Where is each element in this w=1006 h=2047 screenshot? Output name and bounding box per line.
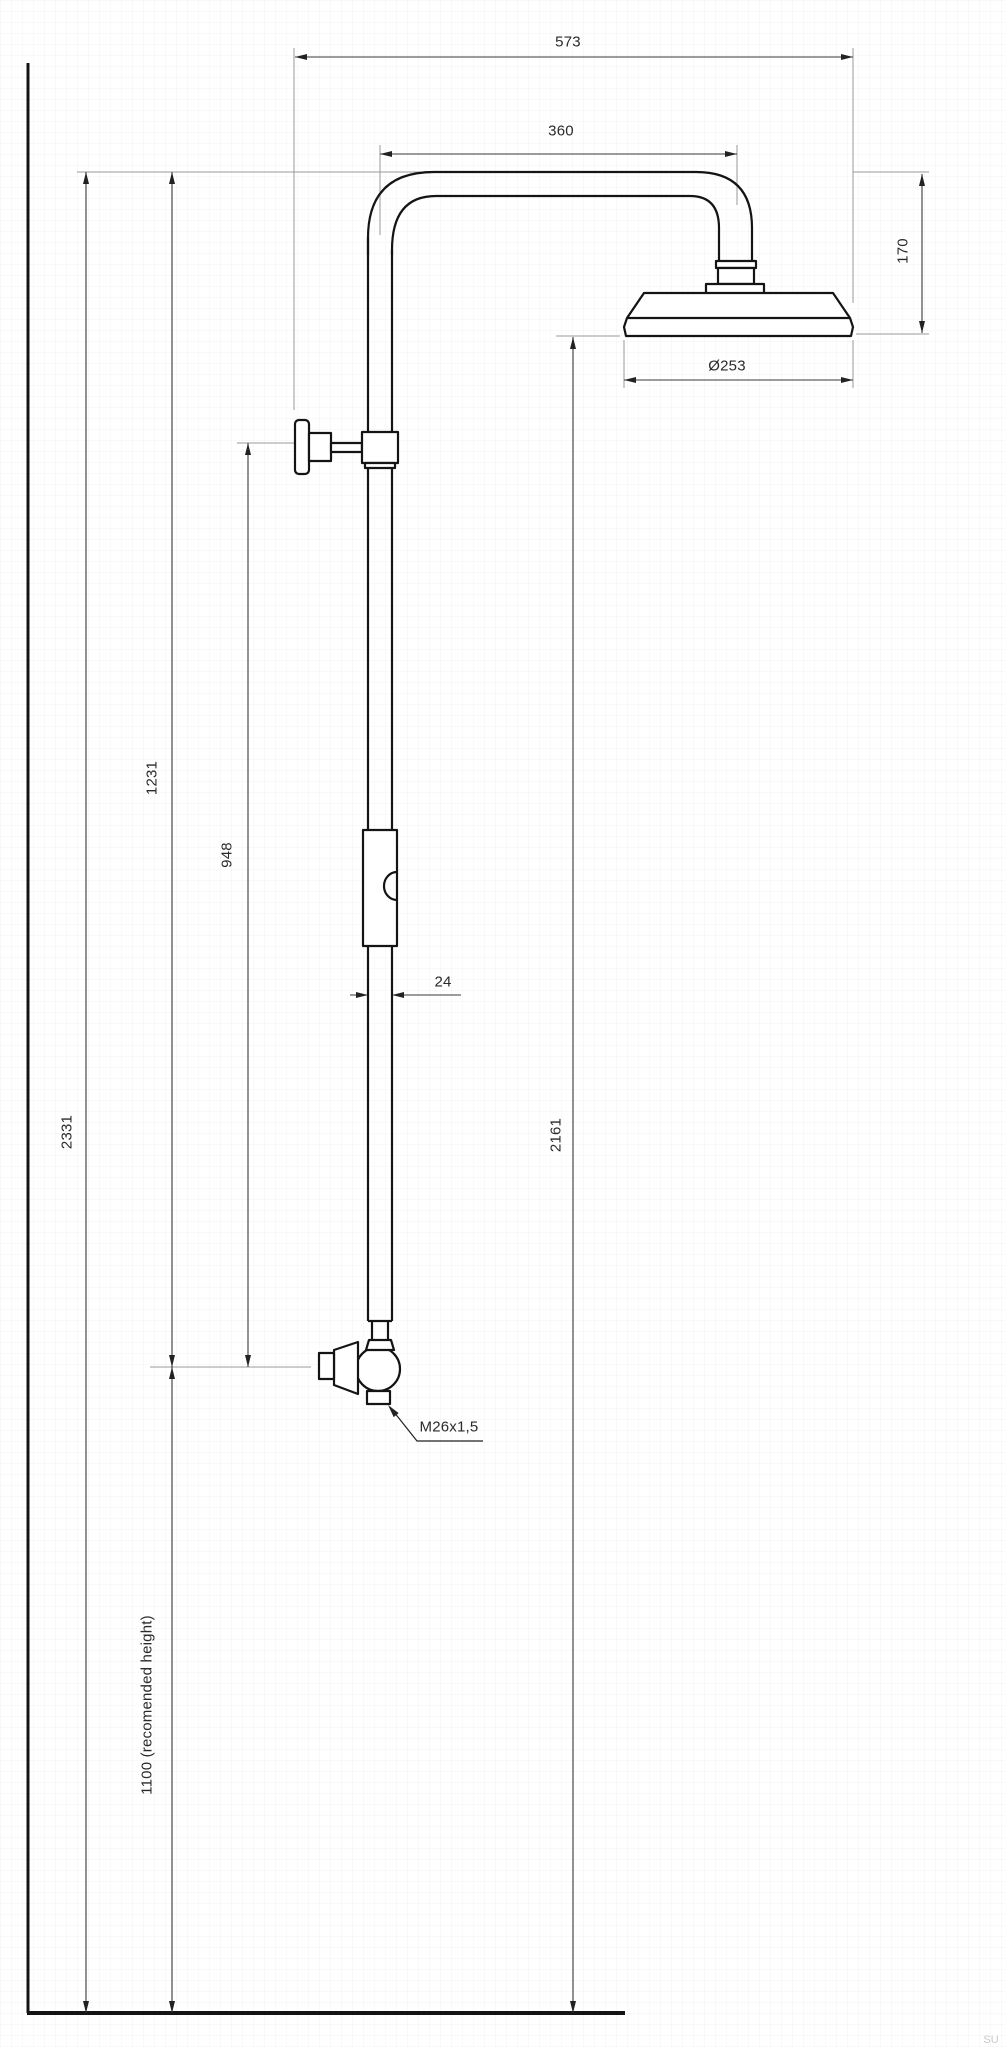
watermark: SU xyxy=(983,2034,998,2046)
dim-label-pipe-diameter: 24 xyxy=(434,974,451,991)
wall-bracket xyxy=(295,420,398,474)
dimension-lines xyxy=(86,57,922,2013)
diverter-slider xyxy=(363,830,397,946)
dim-label-mixer-thread: M26x1,5 xyxy=(420,1419,479,1436)
dim-label-head-height: 170 xyxy=(895,238,912,264)
riser-pipe xyxy=(368,238,392,1321)
dim-label-top-to-mixer: 1231 xyxy=(144,761,161,795)
technical-drawing-page: 573 360 170 Ø253 1231 948 2331 24 2161 M… xyxy=(0,0,1006,2047)
dim-label-mixer-height: 1100 (recomended height) xyxy=(139,1615,156,1795)
mixer-valve xyxy=(319,1321,400,1404)
dim-label-arm-reach: 360 xyxy=(548,123,574,140)
dim-label-head-diameter: Ø253 xyxy=(708,358,746,375)
dim-label-bracket-to-mixer: 948 xyxy=(219,842,236,868)
shower-arm xyxy=(368,172,752,262)
dim-label-overall-width: 573 xyxy=(555,34,581,51)
shower-head xyxy=(624,261,853,336)
extension-lines xyxy=(77,48,929,1367)
dim-label-total-height: 2331 xyxy=(59,1115,76,1149)
arrowheads xyxy=(83,54,925,2013)
dim-label-floor-to-head: 2161 xyxy=(548,1118,565,1152)
